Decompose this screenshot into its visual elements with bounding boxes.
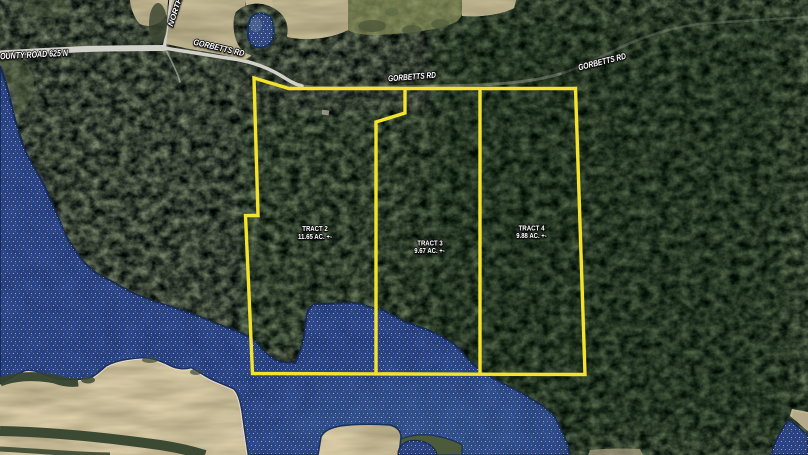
svg-text:9.88 AC. +-: 9.88 AC. +- — [516, 233, 547, 240]
svg-text:TRACT 2: TRACT 2 — [302, 224, 328, 233]
svg-text:9.67 AC. +-: 9.67 AC. +- — [414, 248, 445, 255]
svg-text:TRACT 4: TRACT 4 — [519, 224, 545, 233]
svg-text:TRACT 3: TRACT 3 — [417, 239, 443, 248]
svg-text:11.65 AC. +-: 11.65 AC. +- — [298, 234, 333, 241]
